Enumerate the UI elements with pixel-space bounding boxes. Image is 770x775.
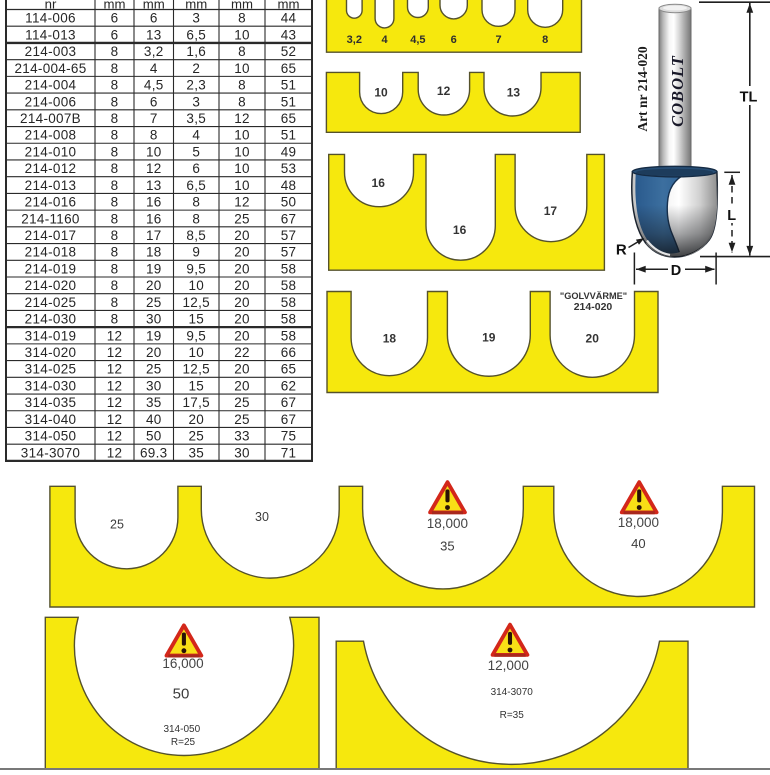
- svg-text:44: 44: [281, 11, 297, 26]
- svg-text:7: 7: [495, 34, 501, 46]
- svg-text:114-006: 114-006: [25, 11, 76, 26]
- svg-text:314-3070: 314-3070: [491, 687, 534, 698]
- svg-text:20: 20: [146, 345, 162, 360]
- svg-text:30: 30: [146, 312, 162, 327]
- svg-text:214-010: 214-010: [25, 144, 77, 159]
- svg-text:58: 58: [281, 328, 297, 343]
- svg-text:57: 57: [281, 245, 297, 260]
- svg-text:10: 10: [234, 128, 250, 143]
- svg-text:R=25: R=25: [171, 737, 196, 748]
- svg-text:62: 62: [281, 379, 297, 394]
- svg-text:314-3070: 314-3070: [21, 445, 80, 460]
- svg-text:9,5: 9,5: [186, 261, 206, 276]
- svg-text:50: 50: [146, 429, 162, 444]
- svg-text:25: 25: [234, 412, 250, 427]
- svg-text:58: 58: [281, 295, 297, 310]
- svg-text:10: 10: [234, 161, 250, 176]
- svg-text:8,5: 8,5: [186, 228, 206, 243]
- svg-text:314-035: 314-035: [25, 395, 77, 410]
- svg-text:D: D: [671, 263, 681, 279]
- svg-text:214-1160: 214-1160: [21, 211, 79, 226]
- svg-text:51: 51: [281, 128, 297, 143]
- svg-text:8: 8: [111, 178, 119, 193]
- svg-text:8: 8: [111, 144, 119, 159]
- svg-text:13: 13: [146, 27, 162, 42]
- svg-text:R: R: [616, 242, 627, 259]
- svg-text:67: 67: [281, 412, 297, 427]
- svg-text:50: 50: [173, 686, 190, 703]
- svg-text:8: 8: [111, 78, 119, 93]
- svg-text:25: 25: [234, 211, 250, 226]
- svg-text:67: 67: [281, 211, 297, 226]
- svg-text:22: 22: [234, 345, 250, 360]
- svg-text:8: 8: [111, 128, 119, 143]
- svg-text:13: 13: [146, 178, 162, 193]
- svg-text:5: 5: [192, 144, 200, 159]
- svg-text:8: 8: [111, 261, 119, 276]
- svg-text:8: 8: [111, 111, 119, 126]
- svg-text:20: 20: [234, 245, 250, 260]
- svg-text:51: 51: [281, 78, 297, 93]
- svg-text:16: 16: [372, 176, 386, 190]
- svg-text:58: 58: [281, 261, 297, 276]
- svg-text:12: 12: [234, 195, 250, 210]
- svg-text:8: 8: [238, 78, 246, 93]
- svg-text:15: 15: [188, 379, 204, 394]
- svg-text:12: 12: [107, 395, 123, 410]
- svg-text:40: 40: [631, 536, 645, 551]
- svg-text:30: 30: [146, 379, 162, 394]
- svg-text:COBOLT: COBOLT: [668, 55, 687, 127]
- svg-text:214-004: 214-004: [25, 78, 77, 93]
- svg-text:314-019: 314-019: [25, 328, 77, 343]
- svg-text:20: 20: [234, 328, 250, 343]
- svg-text:12,5: 12,5: [183, 362, 210, 377]
- svg-text:18,000: 18,000: [618, 515, 659, 530]
- svg-text:20: 20: [234, 379, 250, 394]
- svg-text:15: 15: [188, 312, 204, 327]
- svg-text:8: 8: [111, 278, 119, 293]
- svg-text:12: 12: [146, 161, 162, 176]
- svg-text:16: 16: [453, 223, 467, 237]
- svg-text:8: 8: [238, 44, 246, 59]
- svg-text:19: 19: [146, 328, 162, 343]
- svg-text:50: 50: [281, 195, 297, 210]
- svg-text:6: 6: [451, 34, 457, 46]
- svg-text:20: 20: [234, 295, 250, 310]
- svg-text:10: 10: [234, 178, 250, 193]
- svg-text:13: 13: [507, 85, 521, 99]
- svg-text:48: 48: [281, 178, 297, 193]
- svg-text:67: 67: [281, 395, 297, 410]
- svg-text:10: 10: [234, 144, 250, 159]
- svg-text:35: 35: [188, 445, 204, 460]
- svg-text:65: 65: [281, 61, 297, 76]
- svg-text:8: 8: [111, 61, 119, 76]
- svg-text:52: 52: [281, 44, 297, 59]
- svg-text:4,5: 4,5: [144, 78, 164, 93]
- svg-text:16: 16: [146, 195, 162, 210]
- svg-text:20: 20: [146, 278, 162, 293]
- svg-text:214-004-65: 214-004-65: [14, 61, 86, 76]
- svg-text:58: 58: [281, 278, 297, 293]
- svg-text:8: 8: [111, 195, 119, 210]
- svg-text:314-050: 314-050: [25, 429, 77, 444]
- svg-text:214-030: 214-030: [25, 312, 77, 327]
- svg-text:3,2: 3,2: [144, 44, 164, 59]
- svg-text:17,5: 17,5: [183, 395, 210, 410]
- svg-text:314-040: 314-040: [25, 412, 77, 427]
- svg-text:25: 25: [234, 395, 250, 410]
- svg-text:10: 10: [374, 86, 388, 100]
- svg-text:214-016: 214-016: [25, 195, 77, 210]
- svg-text:314-025: 314-025: [25, 362, 77, 377]
- svg-text:17: 17: [146, 228, 162, 243]
- svg-text:214-007B: 214-007B: [20, 111, 81, 126]
- svg-text:314-020: 314-020: [25, 345, 77, 360]
- svg-text:8: 8: [192, 195, 200, 210]
- svg-text:12: 12: [107, 345, 123, 360]
- svg-text:214-020: 214-020: [25, 278, 77, 293]
- svg-text:R=35: R=35: [500, 710, 525, 721]
- svg-text:25: 25: [146, 295, 162, 310]
- svg-text:12,000: 12,000: [488, 658, 529, 673]
- svg-text:65: 65: [281, 111, 297, 126]
- svg-text:2,3: 2,3: [186, 78, 206, 93]
- svg-text:10: 10: [234, 27, 250, 42]
- svg-text:10: 10: [188, 345, 204, 360]
- svg-text:214-017: 214-017: [25, 228, 77, 243]
- svg-text:40: 40: [146, 412, 162, 427]
- svg-text:114-013: 114-013: [25, 27, 76, 42]
- svg-text:4: 4: [192, 128, 200, 143]
- svg-text:6: 6: [150, 11, 158, 26]
- svg-text:30: 30: [255, 510, 269, 524]
- svg-text:18: 18: [383, 331, 397, 345]
- svg-text:57: 57: [281, 228, 297, 243]
- svg-text:43: 43: [281, 27, 297, 42]
- svg-text:214-019: 214-019: [25, 261, 77, 276]
- svg-text:6: 6: [192, 161, 200, 176]
- svg-text:9: 9: [192, 245, 200, 260]
- svg-text:12: 12: [107, 328, 123, 343]
- svg-text:20: 20: [234, 261, 250, 276]
- svg-text:8: 8: [111, 44, 119, 59]
- svg-text:4,5: 4,5: [410, 34, 425, 46]
- svg-text:10: 10: [234, 61, 250, 76]
- svg-text:3,2: 3,2: [347, 34, 362, 46]
- svg-text:10: 10: [188, 278, 204, 293]
- svg-text:69.3: 69.3: [140, 445, 167, 460]
- svg-text:214-020: 214-020: [574, 301, 613, 313]
- svg-text:8: 8: [111, 94, 119, 109]
- svg-text:17: 17: [544, 204, 558, 218]
- svg-text:8: 8: [111, 312, 119, 327]
- svg-text:4: 4: [150, 61, 158, 76]
- svg-text:75: 75: [281, 429, 297, 444]
- svg-text:7: 7: [150, 111, 158, 126]
- svg-text:8: 8: [111, 211, 119, 226]
- svg-text:66: 66: [281, 345, 297, 360]
- svg-text:25: 25: [146, 362, 162, 377]
- svg-text:16,000: 16,000: [162, 656, 203, 671]
- svg-text:12: 12: [107, 445, 123, 460]
- svg-text:214-003: 214-003: [25, 44, 77, 59]
- svg-text:20: 20: [234, 312, 250, 327]
- svg-text:35: 35: [146, 395, 162, 410]
- svg-text:214-006: 214-006: [25, 94, 77, 109]
- svg-text:18,000: 18,000: [427, 516, 468, 531]
- svg-text:TL: TL: [740, 90, 758, 106]
- svg-text:8: 8: [111, 295, 119, 310]
- svg-text:3,5: 3,5: [186, 111, 206, 126]
- svg-text:12: 12: [437, 84, 451, 98]
- svg-text:71: 71: [281, 445, 297, 460]
- svg-text:8: 8: [111, 228, 119, 243]
- svg-text:19: 19: [146, 261, 162, 276]
- svg-text:8: 8: [238, 11, 246, 26]
- svg-text:51: 51: [281, 94, 297, 109]
- svg-text:8: 8: [111, 245, 119, 260]
- svg-text:20: 20: [234, 228, 250, 243]
- svg-text:12: 12: [107, 379, 123, 394]
- svg-text:18: 18: [146, 245, 162, 260]
- svg-text:Art nr 214-020: Art nr 214-020: [635, 46, 650, 131]
- svg-text:12: 12: [107, 429, 123, 444]
- svg-text:9,5: 9,5: [186, 328, 206, 343]
- svg-text:"GOLVVÄRME": "GOLVVÄRME": [560, 291, 627, 301]
- svg-text:8: 8: [150, 128, 158, 143]
- svg-text:314-030: 314-030: [25, 379, 77, 394]
- svg-text:214-013: 214-013: [25, 178, 77, 193]
- svg-text:214-018: 214-018: [25, 245, 77, 260]
- svg-text:19: 19: [482, 331, 496, 345]
- svg-text:33: 33: [234, 429, 250, 444]
- svg-text:25: 25: [188, 429, 204, 444]
- svg-text:6: 6: [111, 11, 119, 26]
- svg-text:8: 8: [542, 34, 548, 46]
- svg-text:20: 20: [234, 362, 250, 377]
- svg-text:58: 58: [281, 312, 297, 327]
- svg-text:214-008: 214-008: [25, 128, 77, 143]
- svg-text:16: 16: [146, 211, 162, 226]
- svg-text:10: 10: [146, 144, 162, 159]
- svg-text:6,5: 6,5: [186, 27, 206, 42]
- svg-text:8: 8: [192, 211, 200, 226]
- svg-text:4: 4: [381, 34, 388, 46]
- svg-text:6,5: 6,5: [186, 178, 206, 193]
- svg-text:8: 8: [238, 94, 246, 109]
- svg-text:12: 12: [107, 412, 123, 427]
- svg-text:20: 20: [234, 278, 250, 293]
- svg-text:12,5: 12,5: [183, 295, 210, 310]
- svg-text:1,6: 1,6: [186, 44, 206, 59]
- svg-text:12: 12: [107, 362, 123, 377]
- svg-text:20: 20: [586, 331, 600, 345]
- svg-text:53: 53: [281, 161, 297, 176]
- svg-text:3: 3: [192, 94, 200, 109]
- svg-text:35: 35: [440, 538, 454, 553]
- svg-text:3: 3: [192, 11, 200, 26]
- svg-text:214-012: 214-012: [25, 161, 77, 176]
- svg-text:8: 8: [111, 161, 119, 176]
- svg-text:20: 20: [188, 412, 204, 427]
- svg-text:L: L: [727, 208, 736, 224]
- svg-text:314-050: 314-050: [163, 724, 200, 735]
- svg-text:6: 6: [150, 94, 158, 109]
- svg-text:49: 49: [281, 144, 297, 159]
- svg-text:65: 65: [281, 362, 297, 377]
- svg-text:6: 6: [111, 27, 119, 42]
- svg-text:12: 12: [234, 111, 250, 126]
- svg-text:214-025: 214-025: [25, 295, 77, 310]
- svg-text:25: 25: [110, 518, 124, 532]
- svg-text:2: 2: [192, 61, 200, 76]
- svg-text:30: 30: [234, 445, 250, 460]
